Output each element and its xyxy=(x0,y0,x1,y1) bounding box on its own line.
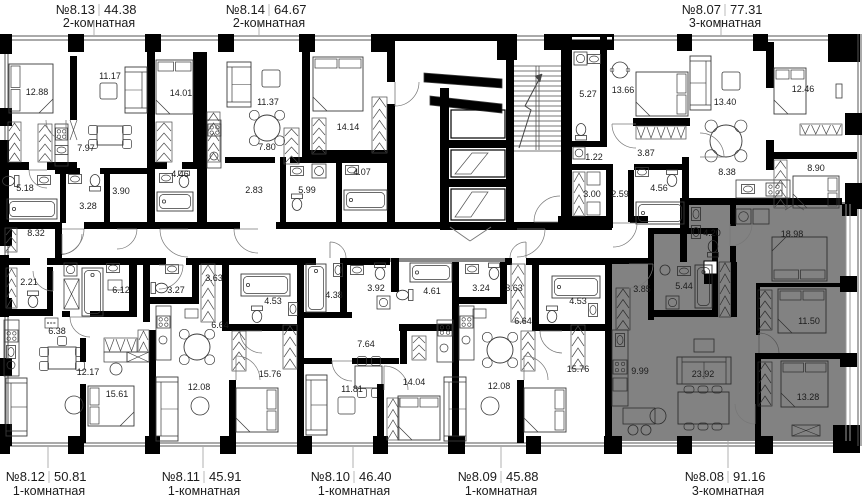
svg-text:6.12: 6.12 xyxy=(112,285,130,295)
svg-text:1-комнатная: 1-комнатная xyxy=(465,484,537,498)
svg-text:1-комнатная: 1-комнатная xyxy=(13,484,85,498)
svg-text:44.38: 44.38 xyxy=(104,2,137,17)
svg-text:11.17: 11.17 xyxy=(99,71,121,81)
svg-text:14.01: 14.01 xyxy=(170,88,193,98)
svg-text:7.64: 7.64 xyxy=(357,339,375,349)
svg-text:64.67: 64.67 xyxy=(274,2,307,17)
svg-text:7.80: 7.80 xyxy=(258,142,276,152)
svg-text:2.59: 2.59 xyxy=(611,189,629,199)
svg-text:12.17: 12.17 xyxy=(77,367,100,377)
svg-text:1-комнатная: 1-комнатная xyxy=(168,484,240,498)
svg-text:13.28: 13.28 xyxy=(797,392,820,402)
svg-text:12.88: 12.88 xyxy=(26,87,49,97)
svg-text:№8.08: №8.08 xyxy=(685,469,724,484)
svg-text:12.08: 12.08 xyxy=(188,382,211,392)
svg-text:13.40: 13.40 xyxy=(714,97,737,107)
svg-text:3-комнатная: 3-комнатная xyxy=(692,484,764,498)
svg-text:14.14: 14.14 xyxy=(337,122,360,132)
svg-text:23.92: 23.92 xyxy=(692,369,715,379)
svg-text:91.16: 91.16 xyxy=(733,469,766,484)
svg-text:3.28: 3.28 xyxy=(79,201,97,211)
svg-text:6.64: 6.64 xyxy=(514,316,532,326)
svg-text:3.90: 3.90 xyxy=(112,186,130,196)
svg-text:13.66: 13.66 xyxy=(612,85,635,95)
svg-text:№8.09: №8.09 xyxy=(458,469,497,484)
svg-text:4.53: 4.53 xyxy=(264,296,282,306)
svg-text:7.97: 7.97 xyxy=(77,143,95,153)
svg-text:50.81: 50.81 xyxy=(54,469,87,484)
svg-text:4.38: 4.38 xyxy=(325,290,343,300)
svg-text:№8.13: №8.13 xyxy=(56,2,95,17)
svg-text:11.81: 11.81 xyxy=(341,384,363,394)
svg-text:8.32: 8.32 xyxy=(27,228,45,238)
svg-text:5.18: 5.18 xyxy=(16,183,34,193)
svg-text:№8.10: №8.10 xyxy=(311,469,350,484)
svg-text:3-комнатная: 3-комнатная xyxy=(689,16,761,30)
svg-text:3.24: 3.24 xyxy=(472,283,490,293)
svg-text:6.38: 6.38 xyxy=(48,326,66,336)
svg-text:11.50: 11.50 xyxy=(798,316,820,326)
svg-text:45.91: 45.91 xyxy=(209,469,242,484)
svg-text:1-комнатная: 1-комнатная xyxy=(318,484,390,498)
svg-text:14.04: 14.04 xyxy=(403,377,426,387)
svg-text:1.22: 1.22 xyxy=(585,152,603,162)
svg-text:15.61: 15.61 xyxy=(106,389,129,399)
svg-text:3.87: 3.87 xyxy=(637,148,655,158)
svg-text:12.46: 12.46 xyxy=(792,84,815,94)
svg-text:2.21: 2.21 xyxy=(20,277,38,287)
svg-text:4.07: 4.07 xyxy=(353,167,371,177)
svg-text:46.40: 46.40 xyxy=(359,469,392,484)
svg-text:2.83: 2.83 xyxy=(245,185,263,195)
svg-text:2-комнатная: 2-комнатная xyxy=(233,16,305,30)
svg-text:5.99: 5.99 xyxy=(298,185,316,195)
svg-text:15.76: 15.76 xyxy=(567,364,590,374)
svg-text:3.85: 3.85 xyxy=(633,284,651,294)
svg-text:3.00: 3.00 xyxy=(583,189,601,199)
svg-text:15.76: 15.76 xyxy=(259,369,282,379)
svg-text:3.63: 3.63 xyxy=(205,273,223,283)
svg-text:4.53: 4.53 xyxy=(569,296,587,306)
svg-text:4.46: 4.46 xyxy=(171,169,189,179)
svg-text:№8.07: №8.07 xyxy=(682,2,721,17)
svg-text:8.90: 8.90 xyxy=(807,163,825,173)
svg-text:8.38: 8.38 xyxy=(718,167,736,177)
svg-text:3.63: 3.63 xyxy=(505,283,523,293)
svg-text:3.27: 3.27 xyxy=(167,285,185,295)
svg-text:45.88: 45.88 xyxy=(506,469,539,484)
svg-text:3.92: 3.92 xyxy=(367,283,385,293)
svg-text:№8.14: №8.14 xyxy=(226,2,265,17)
svg-text:4.56: 4.56 xyxy=(650,183,668,193)
svg-text:4.61: 4.61 xyxy=(423,286,441,296)
svg-text:5.44: 5.44 xyxy=(675,281,693,291)
svg-text:18.98: 18.98 xyxy=(781,229,804,239)
svg-text:4.20: 4.20 xyxy=(703,228,721,238)
svg-text:6.64: 6.64 xyxy=(211,320,229,330)
svg-text:№8.12: №8.12 xyxy=(6,469,45,484)
svg-text:12.08: 12.08 xyxy=(488,381,511,391)
svg-text:11.37: 11.37 xyxy=(257,97,279,107)
svg-text:9.99: 9.99 xyxy=(631,366,649,376)
svg-text:№8.11: №8.11 xyxy=(162,469,200,484)
svg-text:5.27: 5.27 xyxy=(579,89,597,99)
svg-text:77.31: 77.31 xyxy=(730,2,763,17)
svg-text:2-комнатная: 2-комнатная xyxy=(63,16,135,30)
